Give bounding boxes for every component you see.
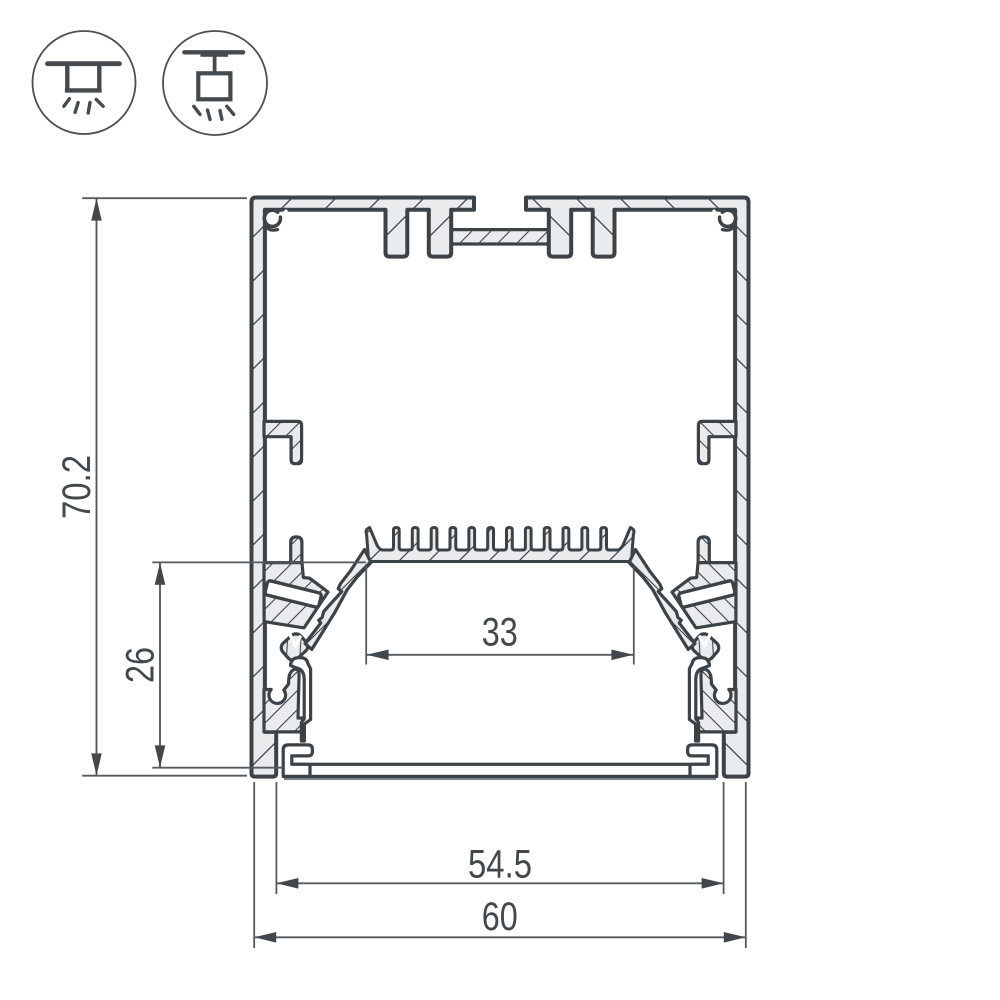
svg-text:54.5: 54.5: [468, 843, 532, 887]
svg-text:60: 60: [482, 895, 518, 939]
svg-text:70.2: 70.2: [55, 455, 99, 519]
svg-text:33: 33: [482, 611, 518, 655]
svg-text:26: 26: [119, 647, 163, 683]
